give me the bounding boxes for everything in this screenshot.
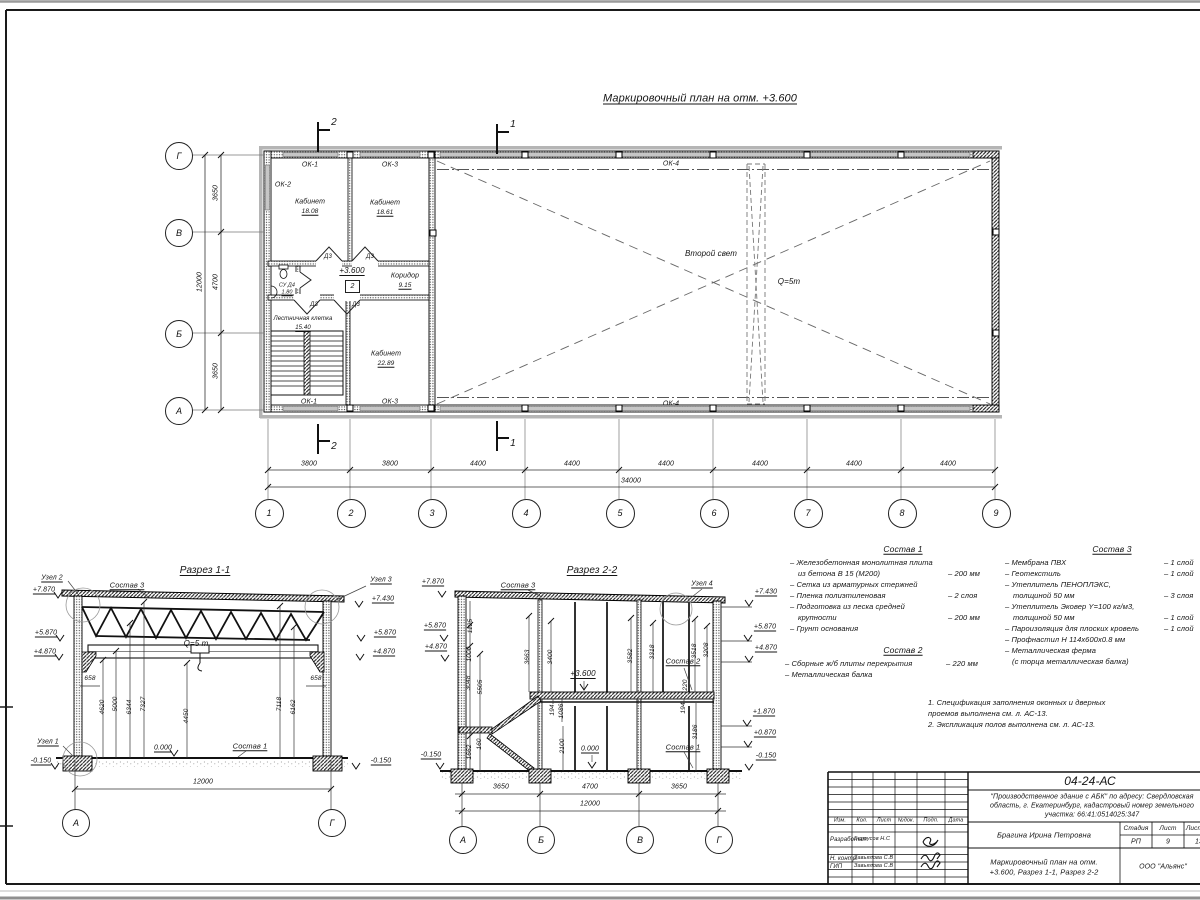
window-label: ОК-1 [302,162,318,169]
room-name: Кабинет [371,351,401,358]
tb-header: Лист [877,818,892,824]
list-item: – Грунт основания [790,625,858,633]
dim-label: 658 [84,676,95,683]
crane-bridge [747,164,765,404]
list-value: – 1 слой [1164,559,1194,567]
cut-label: 1 [510,120,516,130]
leaders [528,589,702,768]
axis-bubble: А [449,826,477,854]
dim-label: 3208 [704,643,711,658]
dim-label: 3650 [671,784,687,791]
axis-bubble: Г [705,826,733,854]
node-label: Узел 2 [41,575,63,582]
sostav-label: Состав 1 [666,743,701,751]
sostav-label: Состав 1 [233,742,268,750]
axis-bubble: Г [165,142,193,170]
tb-person: Белоусов Н.С [854,837,890,843]
window-label: ОК-1 [301,399,317,406]
tb-stage-value: РП [1131,839,1141,846]
dim-label: 3800 [382,461,398,468]
tb-sheet-header: Лист [1159,826,1176,833]
crane-rails [437,170,992,398]
list-item: – Геотекстиль [1005,570,1061,578]
level-label: +5.870 [374,630,396,637]
level-label: +3.600 [570,670,595,678]
dim-label: 6162 [291,700,298,715]
tb-header: Кол. [856,818,867,824]
room-area: 1.80 [281,290,292,296]
dim-label: 6344 [127,700,134,715]
axis-bubble: Г [318,809,346,837]
list-item: – Металлическая балка [785,671,872,679]
bracing-x [437,161,990,404]
dim-label: 5000 [113,697,120,712]
level-label: +4.870 [755,645,777,652]
axis-bubble: А [62,809,90,837]
room-name: Кабинет [370,200,400,207]
level-label: +7.870 [422,579,444,586]
dim-label: 2100 [560,739,567,754]
dim-label: 4400 [940,461,956,468]
cut-label: 1 [510,439,516,449]
sostav-label: Состав 3 [110,581,145,589]
dim-label: 3650 [213,363,220,379]
tb-person: Завьялова С.В [854,856,893,862]
stair-flight-up [492,696,541,734]
cut-label: 2 [331,118,337,128]
level-label: +0.870 [754,730,776,737]
axis-lines [191,155,995,499]
dim-label: 4400 [752,461,768,468]
stair-landing [459,727,492,733]
stair-flight-down [487,734,534,772]
tb-header: Изм. [834,818,846,824]
dim-label: 4400 [470,461,486,468]
axis-bubble: В [626,826,654,854]
level-label: -0.150 [421,752,441,759]
list-item: толщиной 50 мм [1013,592,1075,600]
dim-label: 194 [681,702,688,713]
window-label: ОК-2 [275,182,291,189]
door-label: Д3 [352,302,360,308]
axis-bubble: 9 [982,499,1011,528]
window-label: ОК-4 [663,401,679,408]
level-label: +5.870 [754,624,776,631]
room-name: Коридор [391,273,419,280]
list-value: – 200 мм [948,614,980,622]
dim-label: 220 [683,679,690,690]
dim-total-label: 12000 [197,272,204,292]
level-label: +5.870 [424,623,446,630]
truss [82,607,324,640]
room-area: 18.08 [302,209,319,216]
dim-label: 3650 [493,784,509,791]
list-item: – Мембрана ПВХ [1005,559,1066,567]
list-item: – Металлическая ферма [1005,647,1096,655]
list-item: – Железобетонная монолитная плита [790,559,933,567]
section-title: Разрез 2-2 [567,566,618,576]
dim-label: 1000 [467,647,474,662]
drawing-sheet: Маркировочный план на отм. +3.600 2 1 2 … [0,0,1200,900]
axis-bubble: 3 [418,499,447,528]
tb-sheets-value: 13 [1195,839,1200,846]
project-line: участка: 66:41:0514025:347 [1045,812,1139,819]
list-value: – 1 слой [1164,614,1194,622]
level-label: -0.150 [371,758,391,765]
level-label: +1.870 [753,709,775,716]
wall-right [992,151,999,412]
node-label: Узел 1 [37,739,59,746]
list-item: – Сетка из арматурных стержней [790,581,917,589]
dim-label: 160 [477,738,484,749]
axis-bubble: 8 [888,499,917,528]
axis-bubble: 1 [255,499,284,528]
dim-lines [455,601,752,826]
dim-label: 1662 [467,745,474,760]
dim-label: 3186 [693,725,700,740]
dim-label: 4700 [213,274,220,290]
list-value: – 220 мм [946,660,978,668]
page-title: Маркировочный план на отм. +3.600 [603,94,797,105]
tb-doc-title: +3.600, Разрез 1-1, Разрез 2-2 [990,868,1099,876]
axis-bubble: А [165,397,193,425]
toilet-icon [279,265,288,279]
dim-total-label: 12000 [193,779,213,786]
list-value: – 3 слоя [1164,592,1193,600]
second-light-label: Второй свет [685,250,737,258]
project-line: область, г. Екатеринбург, кадастровый но… [990,803,1194,810]
dim-label: 4400 [658,461,674,468]
sostav2-title: Состав 2 [883,646,922,655]
window-symbols [266,153,971,411]
level-mark: +3.600 [339,267,364,275]
dim-label: 4400 [846,461,862,468]
level-label: +4.870 [425,644,447,651]
dim-label: 4620 [100,700,107,715]
section-title: Разрез 1-1 [180,566,231,576]
axis-bubble: 6 [700,499,729,528]
dim-label: 3048 [466,676,473,691]
list-item: крупности [798,614,837,622]
dim-label: 7327 [141,697,148,712]
list-item: (с торца металлическая балка) [1012,658,1129,666]
note-line: 1. Спецификация заполнения оконных и две… [928,699,1106,707]
dim-label: 4450 [184,709,191,724]
column-markers [347,152,999,411]
sostav-label: Состав 3 [501,581,536,589]
tb-sheet-value: 9 [1166,839,1170,846]
dim-label: 3800 [301,461,317,468]
crane-capacity-label: Q=5т [778,278,800,286]
list-value: – 2 слоя [948,592,977,600]
dim-label: 194 [550,704,557,715]
room-name: СУ Д4 [279,283,295,289]
dim-label: 3650 [213,185,220,201]
tb-person: Завьялова С.В [854,864,893,870]
list-item: – Утеплитель Эковер Y=100 кг/м3, [1005,603,1134,611]
dim-label: 4400 [564,461,580,468]
dim-label: 3518 [692,644,699,659]
axis-bubble: 7 [794,499,823,528]
section-1-1 [51,581,366,810]
signature [921,837,940,868]
floor-plan [191,122,1002,499]
crane-beam [88,645,318,671]
tb-header: Подп. [923,818,938,824]
window-label: ОК-3 [382,162,398,169]
axis-bubble: Б [165,320,193,348]
tb-header: Дата [949,818,964,824]
level-label: -0.150 [756,753,776,760]
node-circles [63,588,339,776]
axis-bubble: 2 [337,499,366,528]
door-label: Д3 [366,254,374,260]
dim-label: 7118 [277,697,284,711]
dim-total-label: 12000 [580,801,600,808]
drawing-linework [0,0,1200,900]
level-box: 2 [345,280,360,293]
room-area: 15.40 [295,325,311,331]
node-label: Узел 4 [691,581,713,588]
level-label: 0.000 [581,746,599,753]
dim-label: 4700 [582,784,598,791]
level-label: +4.870 [34,649,56,656]
list-value: – 200 мм [948,570,980,578]
list-item: – Пленка полиэтиленовая [790,592,886,600]
wall-hall-left [429,151,435,412]
list-item: – Сборные ж/б плиты перекрытия [785,660,912,668]
slab-3600 [530,692,714,699]
axis-bubble: 4 [512,499,541,528]
sostav3-title: Состав 3 [1092,545,1131,554]
axis-bubble: Б [527,826,555,854]
list-value: – 1 слой [1164,625,1194,633]
room-area: 9.15 [398,283,411,290]
level-label: 0.000 [154,745,172,752]
dim-label: 3400 [548,650,555,665]
dim-label: 3318 [650,645,657,660]
tb-author: Брагина Ирина Петровна [997,831,1091,839]
room-area: 18.61 [377,210,394,217]
dim-label: 1086 [559,704,566,719]
door-label: Д3 [310,302,318,308]
window-label: ОК-4 [663,161,679,168]
list-item: – Подготовка из песка средней [790,603,905,611]
cut-label: 2 [331,442,337,452]
room-name: Лестничная клетка [274,316,333,322]
tb-company: ООО "Альянс" [1139,864,1187,871]
list-item: – Утеплитель ПЕНОПЛЭКС, [1005,581,1111,589]
door-label: Д3 [324,254,332,260]
node-label: Узел 3 [370,577,392,584]
dim-label: 3582 [628,649,635,664]
list-item: из бетона В 15 (М200) [798,570,880,578]
tb-sheets-header: Листов [1186,826,1200,833]
project-line: "Производственное здание с АБК" по адрес… [990,794,1193,801]
tb-header: №док. [898,818,915,824]
crane-capacity-label: Q=5 т [184,640,209,648]
level-label: +4.870 [373,649,395,656]
axis-bubble: В [165,219,193,247]
note-line: проемов выполнена см. л. АС-13. [928,710,1048,718]
room-name: Кабинет [295,199,325,206]
list-item: – Пароизоляция для плоских кровель [1005,625,1139,633]
room-area: 22.89 [378,361,395,368]
list-item: – Профнастил Н 114х600х0.8 мм [1005,636,1125,644]
level-label: +7.430 [755,589,777,596]
dim-label: 1125 [468,619,475,633]
crane-hook-icon [198,663,202,671]
note-line: 2. Экспликация полов выполнена см. л. АС… [928,721,1095,729]
stairs [271,331,343,395]
dim-total-label: 34000 [621,478,641,485]
level-label: +7.870 [33,587,55,594]
level-label: +5.870 [35,630,57,637]
dim-label: 5505 [478,680,485,695]
level-label: -0.150 [31,758,51,765]
tb-doc-title: Маркировочный план на отм. [990,858,1097,866]
dim-label: 658 [310,676,321,683]
level-label: +7.430 [372,596,394,603]
dim-label: 3663 [525,650,532,665]
doc-code: 04-24-АС [1064,775,1115,787]
tb-stage-header: Стадия [1124,826,1149,833]
axis-bubble: 5 [606,499,635,528]
window-label: ОК-3 [382,399,398,406]
list-value: – 1 слой [1164,570,1194,578]
sostav1-title: Состав 1 [883,545,922,554]
tb-role: ГИП [830,864,842,870]
list-item: толщиной 50 мм [1013,614,1075,622]
